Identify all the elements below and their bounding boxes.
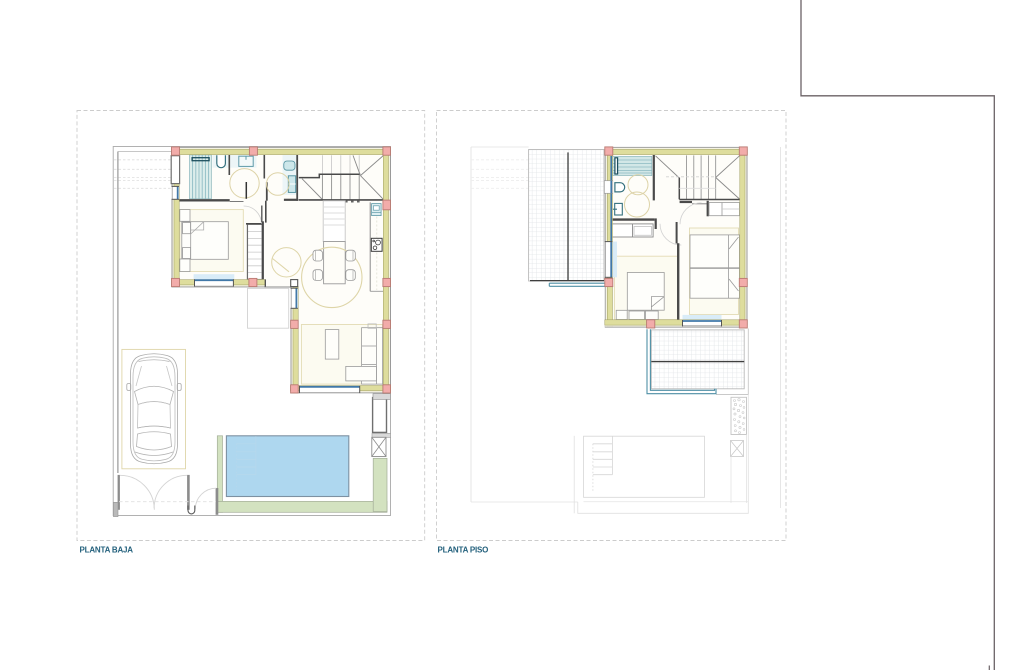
svg-text:PLANTA BAJA: PLANTA BAJA xyxy=(80,546,134,555)
svg-text:PLANTA PISO: PLANTA PISO xyxy=(438,546,489,555)
